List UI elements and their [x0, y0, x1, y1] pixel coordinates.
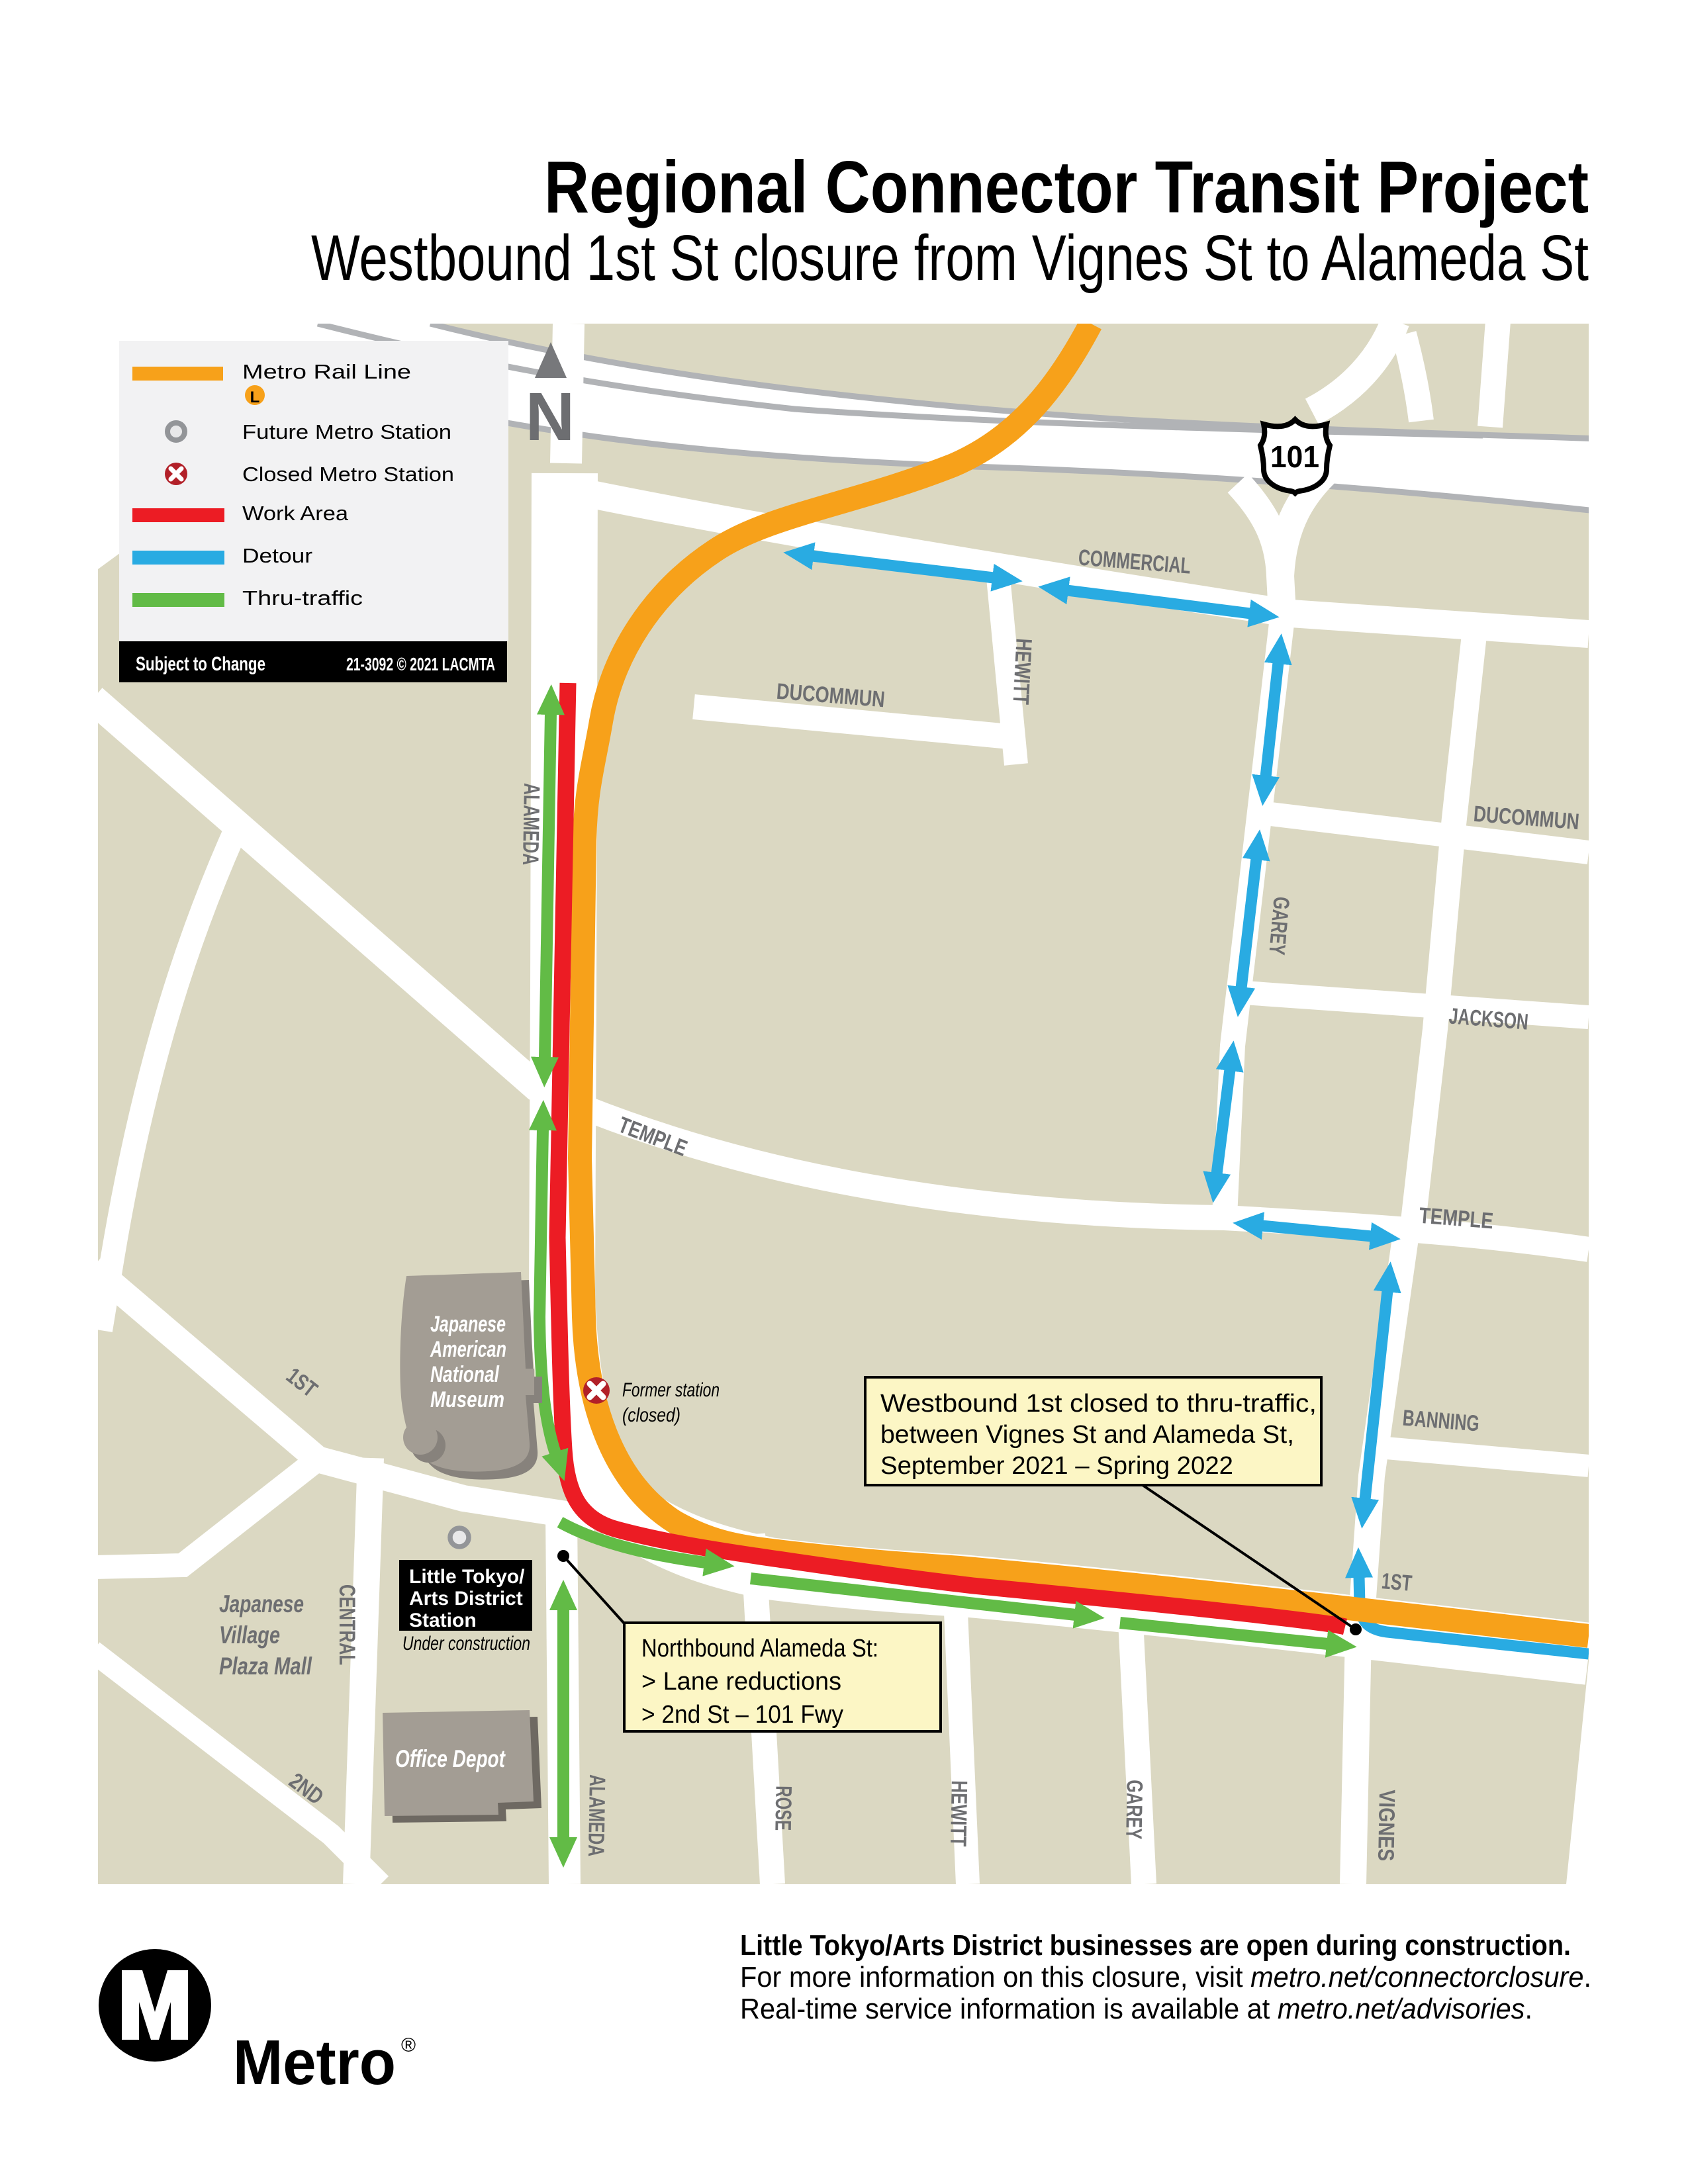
svg-text:ALAMEDA: ALAMEDA	[518, 783, 544, 866]
svg-text:For more information on this c: For more information on this closure, vi…	[740, 1961, 1591, 1993]
svg-text:Metro: Metro	[233, 2027, 396, 2098]
svg-text:®: ®	[401, 2034, 416, 2056]
svg-text:CENTRAL: CENTRAL	[334, 1584, 359, 1665]
svg-text:HEWITT: HEWITT	[945, 1780, 972, 1847]
svg-text:Subject to Change: Subject to Change	[136, 653, 265, 675]
svg-text:N: N	[526, 379, 575, 455]
svg-text:Detour: Detour	[242, 544, 312, 567]
svg-text:1ST: 1ST	[1380, 1569, 1413, 1596]
svg-text:VIGNES: VIGNES	[1373, 1790, 1399, 1862]
svg-text:HEWITT: HEWITT	[1008, 638, 1036, 705]
svg-text:Closed Metro Station: Closed Metro Station	[242, 463, 454, 486]
svg-text:Metro Rail Line: Metro Rail Line	[242, 360, 411, 383]
svg-text:Office Depot: Office Depot	[395, 1745, 506, 1772]
svg-text:GAREY: GAREY	[1121, 1780, 1147, 1840]
svg-text:Work Area: Work Area	[242, 502, 349, 525]
svg-text:21-3092 © 2021 LACMTA: 21-3092 © 2021 LACMTA	[346, 654, 495, 674]
svg-text:Thru-traffic: Thru-traffic	[242, 586, 363, 610]
svg-text:L: L	[250, 388, 260, 406]
svg-text:Little Tokyo/Arts District bus: Little Tokyo/Arts District businesses ar…	[740, 1929, 1571, 1962]
svg-text:Regional Connector Transit Pro: Regional Connector Transit Project	[544, 146, 1589, 228]
svg-text:Under construction: Under construction	[402, 1633, 530, 1655]
svg-text:GAREY: GAREY	[1264, 895, 1294, 956]
svg-text:Future Metro Station: Future Metro Station	[242, 420, 451, 443]
svg-text:Real-time service information: Real-time service information is availab…	[740, 1993, 1532, 2025]
svg-text:101: 101	[1270, 439, 1319, 474]
svg-text:ROSE: ROSE	[770, 1786, 796, 1831]
svg-text:JapaneseAmericanNationalMuseum: JapaneseAmericanNationalMuseum	[430, 1312, 506, 1412]
svg-text:Westbound 1st St closure from: Westbound 1st St closure from Vignes St …	[311, 222, 1589, 294]
svg-text:ALAMEDA: ALAMEDA	[583, 1774, 610, 1857]
